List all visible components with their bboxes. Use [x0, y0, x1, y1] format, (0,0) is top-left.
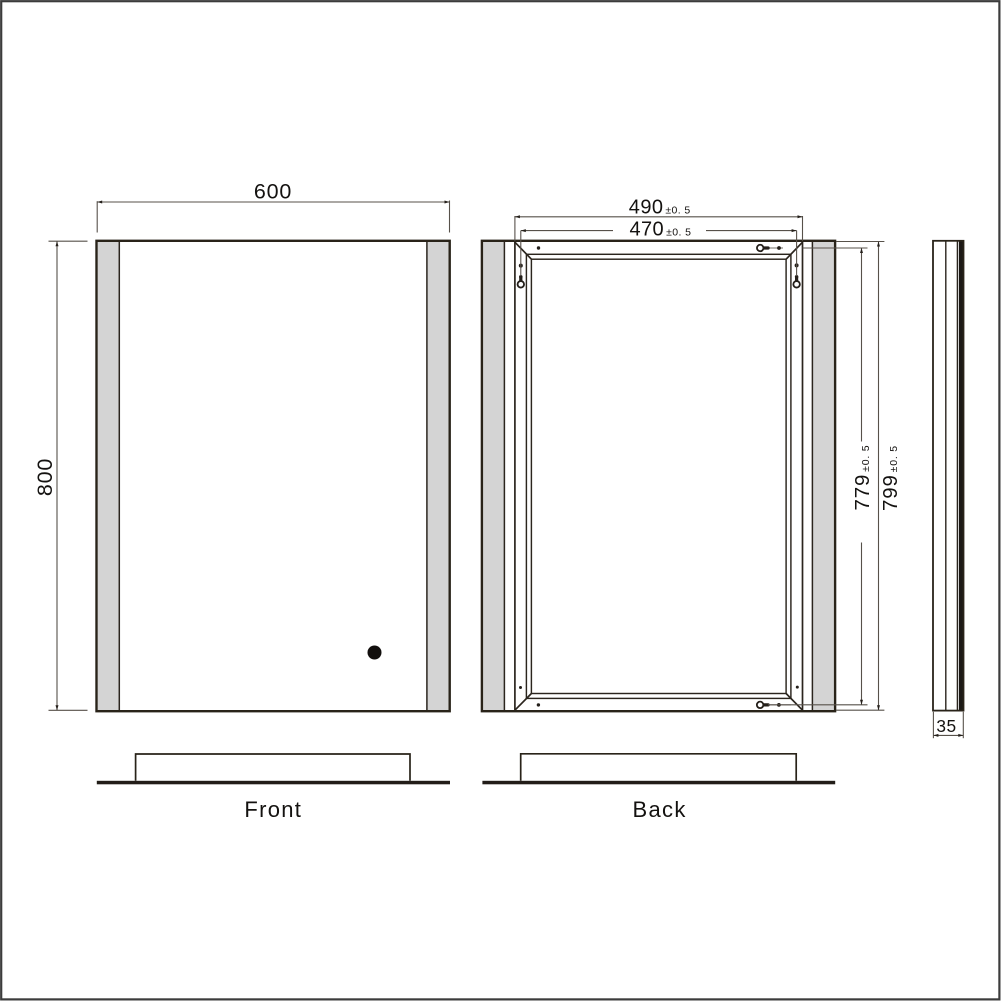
- svg-text:600: 600: [254, 180, 292, 204]
- svg-text:Front: Front: [244, 797, 302, 822]
- svg-text:800: 800: [33, 458, 57, 496]
- svg-text:Back: Back: [633, 797, 687, 822]
- svg-text:35: 35: [936, 716, 956, 736]
